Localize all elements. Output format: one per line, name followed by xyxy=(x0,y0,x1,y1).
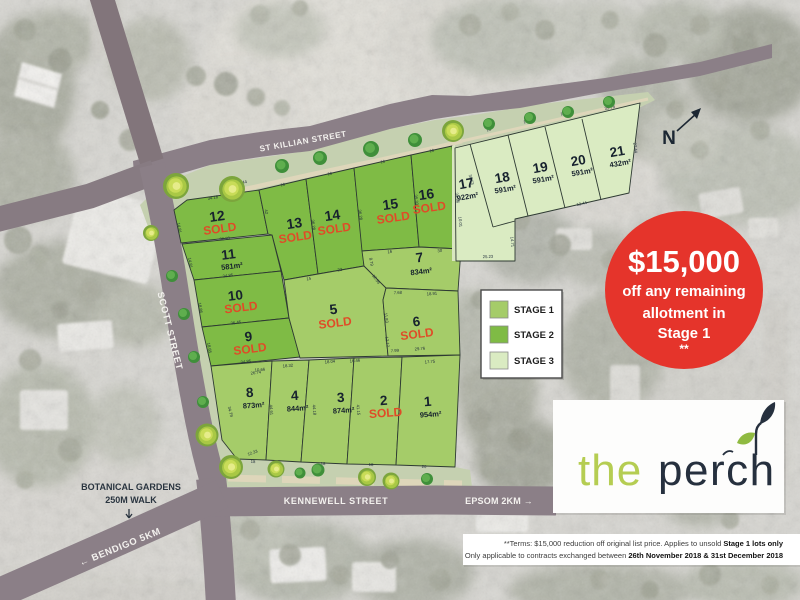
svg-text:EPSOM 2KM →: EPSOM 2KM → xyxy=(465,496,533,506)
svg-text:44.18: 44.18 xyxy=(312,404,318,416)
svg-text:874m²: 874m² xyxy=(332,405,355,416)
svg-text:18.04: 18.04 xyxy=(324,359,336,365)
svg-text:954m²: 954m² xyxy=(419,409,442,420)
svg-text:18.91: 18.91 xyxy=(426,291,437,297)
svg-text:7.68: 7.68 xyxy=(394,290,403,296)
svg-text:STAGE 1: STAGE 1 xyxy=(514,305,555,316)
svg-text:25.23: 25.23 xyxy=(483,254,494,259)
svg-text:perch: perch xyxy=(658,446,776,495)
svg-text:250M WALK: 250M WALK xyxy=(105,495,157,505)
svg-text:10.66: 10.66 xyxy=(254,367,266,373)
svg-text:allotment in: allotment in xyxy=(642,306,725,322)
svg-text:41.15: 41.15 xyxy=(356,404,362,416)
svg-text:18: 18 xyxy=(251,459,257,464)
svg-text:**: ** xyxy=(679,342,689,356)
svg-text:29.76: 29.76 xyxy=(414,346,426,352)
svg-text:7.99: 7.99 xyxy=(391,348,400,354)
svg-text:18.32: 18.32 xyxy=(282,363,294,369)
svg-text:20: 20 xyxy=(422,464,428,469)
svg-text:STAGE 2: STAGE 2 xyxy=(514,330,554,341)
svg-text:off any remaining: off any remaining xyxy=(622,284,745,300)
svg-text:10.01: 10.01 xyxy=(458,216,464,228)
svg-text:STAGE 3: STAGE 3 xyxy=(514,356,554,367)
svg-text:N: N xyxy=(662,128,676,149)
svg-text:18: 18 xyxy=(369,462,375,467)
svg-text:11: 11 xyxy=(220,246,236,263)
svg-text:17.75: 17.75 xyxy=(424,359,436,365)
svg-text:844m²: 844m² xyxy=(286,403,309,414)
svg-text:BOTANICAL GARDENS: BOTANICAL GARDENS xyxy=(81,482,181,492)
svg-text:the: the xyxy=(578,446,642,495)
svg-text:16.46: 16.46 xyxy=(349,358,361,364)
svg-text:Only applicable to contracts e: Only applicable to contracts exchanged b… xyxy=(465,551,783,560)
svg-text:873m²: 873m² xyxy=(242,400,265,411)
svg-text:SOLD: SOLD xyxy=(368,405,403,421)
svg-text:**Terms: $15,000 reduction off: **Terms: $15,000 reduction off original … xyxy=(504,539,784,548)
svg-text:14.71: 14.71 xyxy=(510,236,516,248)
svg-text:$15,000: $15,000 xyxy=(628,244,740,279)
svg-text:Stage 1: Stage 1 xyxy=(658,326,711,342)
svg-text:KENNEWELL STREET: KENNEWELL STREET xyxy=(284,496,388,506)
svg-text:44.61: 44.61 xyxy=(269,404,275,416)
